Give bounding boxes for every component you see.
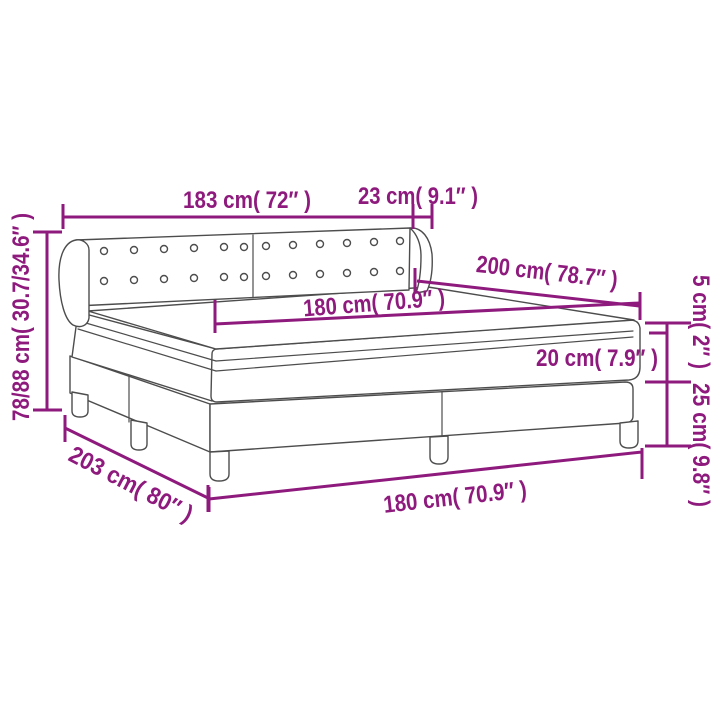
tuft-button: [344, 270, 351, 277]
tuft-button: [317, 271, 324, 278]
headboard-left-roll: [59, 240, 89, 327]
tuft-button: [101, 278, 108, 285]
dim-line-headboard-height: [33, 232, 62, 410]
label-mattress-height: 20 cm( 7.9″ ): [536, 345, 658, 372]
tuft-button: [191, 245, 198, 252]
bed-leg: [430, 436, 448, 464]
tuft-button: [371, 239, 378, 246]
tuft-button: [371, 269, 378, 276]
tuft-button: [101, 248, 108, 255]
bed-dimension-drawing: 183 cm( 72″ ) 23 cm( 9.1″ ) 200 cm( 78.7…: [0, 0, 720, 720]
label-headboard-width: 183 cm( 72″ ): [183, 187, 311, 214]
tuft-button: [241, 244, 248, 251]
tuft-button: [290, 272, 297, 279]
label-headboard-wing-depth: 23 cm( 9.1″ ): [358, 183, 478, 210]
tuft-button: [290, 242, 297, 249]
bed-leg: [620, 421, 638, 448]
tuft-button: [221, 244, 228, 251]
bed-leg: [72, 392, 88, 417]
tuft-button: [161, 246, 168, 253]
tuft-button: [131, 277, 138, 284]
tuft-button: [263, 273, 270, 280]
bed-leg: [131, 420, 147, 450]
tuft-button: [397, 268, 404, 275]
tuft-button: [397, 238, 404, 245]
label-bed-length: 200 cm( 78.7″ ): [475, 251, 619, 294]
tuft-button: [263, 243, 270, 250]
label-base-height: 25 cm( 9.8″ ): [687, 383, 714, 507]
tuft-button: [161, 276, 168, 283]
tuft-button: [191, 275, 198, 282]
label-topper-height: 5 cm( 2″ ): [687, 275, 714, 369]
tuft-button: [317, 241, 324, 248]
label-base-width: 180 cm( 70.9″ ): [382, 476, 528, 519]
tuft-button: [344, 240, 351, 247]
bed-leg: [210, 451, 229, 481]
dimension-diagram: 183 cm( 72″ ) 23 cm( 9.1″ ) 200 cm( 78.7…: [0, 0, 720, 720]
dim-line-height-stack: [645, 323, 691, 446]
label-headboard-height: 78/88 cm( 30.7/34.6″ ): [8, 213, 35, 421]
tuft-button: [221, 274, 228, 281]
tuft-button: [241, 274, 248, 281]
tuft-button: [131, 247, 138, 254]
